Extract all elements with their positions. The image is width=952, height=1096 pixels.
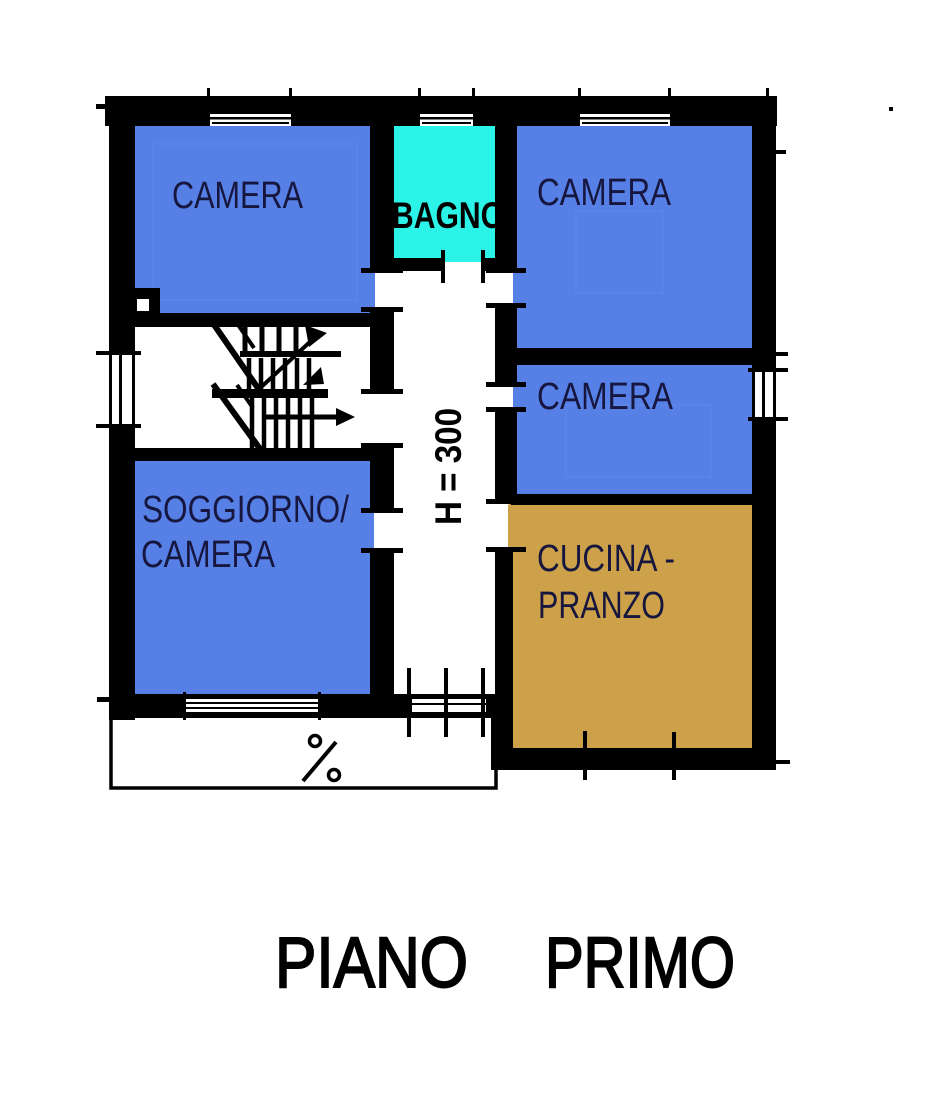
- svg-text:CAMERA: CAMERA: [172, 175, 304, 217]
- svg-text:BAGNO: BAGNO: [392, 195, 504, 236]
- svg-text:H = 300: H = 300: [428, 408, 469, 525]
- svg-text:CAMERA: CAMERA: [537, 172, 672, 214]
- svg-text:SOGGIORNO/: SOGGIORNO/: [142, 489, 349, 531]
- svg-text:CUCINA -: CUCINA -: [537, 538, 675, 580]
- svg-text:PRANZO: PRANZO: [538, 585, 665, 627]
- svg-text:PIANO: PIANO: [275, 924, 468, 1003]
- svg-text:CAMERA: CAMERA: [141, 534, 276, 576]
- svg-text:CAMERA: CAMERA: [537, 376, 674, 418]
- svg-text:PRIMO: PRIMO: [545, 924, 735, 1003]
